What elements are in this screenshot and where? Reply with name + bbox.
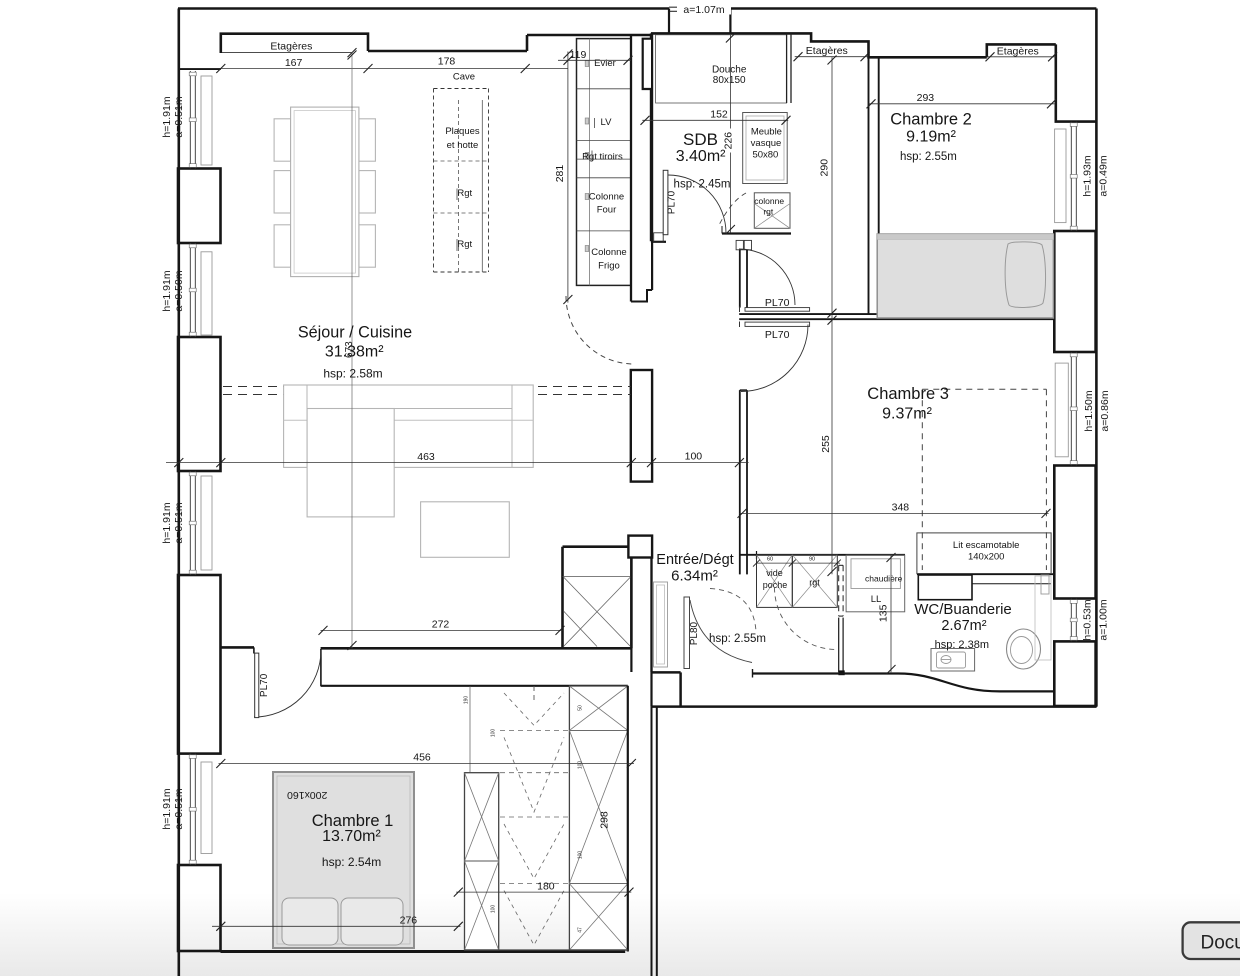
svg-text:135: 135 [877, 604, 889, 622]
svg-text:276: 276 [400, 915, 418, 927]
svg-text:Evier: Evier [594, 58, 616, 69]
svg-text:a=1.07m: a=1.07m [683, 4, 724, 16]
svg-text:Etagères: Etagères [270, 41, 312, 53]
svg-text:Four: Four [597, 204, 617, 215]
svg-text:80x150: 80x150 [713, 75, 746, 86]
svg-text:a=0.51m: a=0.51m [173, 788, 185, 829]
svg-text:h=1.91m: h=1.91m [161, 788, 173, 829]
svg-text:h=1.91m: h=1.91m [161, 96, 173, 137]
svg-text:chaudière: chaudière [865, 574, 903, 584]
svg-text:167: 167 [285, 57, 303, 69]
svg-text:h=1.93m: h=1.93m [1082, 155, 1094, 196]
svg-text:Colonne: Colonne [591, 247, 626, 258]
svg-text:h=1.91m: h=1.91m [161, 270, 173, 311]
svg-text:h=1.50m: h=1.50m [1083, 390, 1095, 431]
svg-text:Lit escamotable: Lit escamotable [953, 540, 1020, 551]
svg-text:PL70: PL70 [765, 297, 790, 309]
svg-text:281: 281 [554, 165, 566, 183]
svg-text:hsp: 2.38m: hsp: 2.38m [935, 639, 989, 651]
svg-text:LL: LL [871, 594, 882, 605]
svg-text:a=0.50m: a=0.50m [173, 270, 185, 311]
svg-text:226: 226 [723, 132, 735, 150]
svg-text:190: 190 [464, 696, 470, 705]
svg-text:rgt: rgt [763, 207, 774, 217]
svg-text:SDB: SDB [683, 130, 718, 149]
svg-text:100: 100 [685, 451, 703, 463]
svg-text:rgt: rgt [809, 578, 820, 588]
svg-text:Docu: Docu [1201, 933, 1240, 954]
svg-text:180: 180 [537, 880, 555, 892]
svg-text:272: 272 [432, 619, 450, 631]
svg-text:PL70: PL70 [259, 673, 270, 697]
svg-text:Séjour / Cuisine: Séjour / Cuisine [298, 324, 412, 342]
svg-text:Plaques: Plaques [445, 126, 480, 137]
svg-text:Douche: Douche [712, 64, 747, 75]
svg-text:vide: vide [766, 568, 783, 578]
svg-text:Chambre 1: Chambre 1 [312, 812, 394, 830]
svg-text:hsp: 2.55m: hsp: 2.55m [900, 151, 957, 163]
svg-text:hsp: 2.58m: hsp: 2.58m [323, 367, 382, 381]
svg-text:Entrée/Dégt: Entrée/Dégt [656, 552, 733, 568]
svg-text:90: 90 [809, 557, 815, 563]
svg-text:LV: LV [601, 117, 613, 128]
svg-text:h=1.91m: h=1.91m [161, 502, 173, 543]
svg-text:200x160: 200x160 [287, 789, 327, 801]
svg-text:3.40m²: 3.40m² [676, 148, 726, 165]
svg-text:255: 255 [820, 435, 832, 453]
svg-text:Rgt: Rgt [457, 239, 472, 250]
svg-text:Etagères: Etagères [997, 45, 1039, 57]
svg-text:463: 463 [417, 451, 435, 463]
svg-text:348: 348 [892, 502, 910, 514]
svg-text:a=0.86m: a=0.86m [1099, 390, 1111, 431]
svg-text:Cave: Cave [453, 72, 475, 83]
svg-text:100: 100 [578, 761, 584, 770]
svg-text:60: 60 [767, 557, 773, 563]
svg-text:47: 47 [578, 927, 584, 933]
svg-text:hsp: 2.45m: hsp: 2.45m [674, 179, 731, 191]
svg-text:100: 100 [491, 729, 497, 738]
svg-text:9.19m²: 9.19m² [906, 129, 956, 146]
svg-text:2.67m²: 2.67m² [941, 618, 986, 634]
svg-text:Colonne: Colonne [589, 192, 624, 203]
svg-text:Etagères: Etagères [806, 45, 848, 57]
svg-text:456: 456 [413, 752, 431, 764]
svg-text:PL70: PL70 [667, 190, 678, 214]
svg-text:293: 293 [917, 92, 935, 104]
svg-text:Chambre 3: Chambre 3 [867, 385, 949, 403]
svg-text:a=0.51m: a=0.51m [173, 502, 185, 543]
svg-text:Chambre 2: Chambre 2 [890, 111, 972, 129]
svg-text:PL70: PL70 [765, 329, 790, 341]
svg-text:Frigo: Frigo [598, 261, 620, 272]
svg-text:Meuble: Meuble [751, 127, 782, 138]
svg-text:140x200: 140x200 [968, 552, 1004, 563]
svg-text:hsp: 2.54m: hsp: 2.54m [322, 855, 381, 869]
svg-text:WC/Buanderie: WC/Buanderie [914, 601, 1012, 618]
svg-text:119: 119 [570, 49, 587, 61]
svg-text:9.37m²: 9.37m² [882, 406, 932, 423]
svg-text:hsp: 2.55m: hsp: 2.55m [709, 633, 766, 645]
svg-text:et hotte: et hotte [447, 140, 479, 151]
svg-text:100: 100 [578, 851, 584, 860]
svg-text:a=1.00m: a=1.00m [1098, 599, 1110, 640]
svg-text:298: 298 [599, 811, 611, 829]
svg-text:13.70m²: 13.70m² [322, 828, 381, 845]
svg-text:poche: poche [763, 580, 788, 590]
svg-text:h=0.53m: h=0.53m [1082, 599, 1094, 640]
svg-text:152: 152 [710, 108, 728, 120]
svg-text:673: 673 [344, 341, 355, 358]
svg-text:colonne: colonne [754, 196, 784, 206]
svg-text:Rgt: Rgt [457, 188, 472, 199]
svg-text:100: 100 [491, 905, 497, 914]
svg-text:290: 290 [818, 159, 830, 177]
svg-text:vasque: vasque [751, 138, 782, 149]
svg-text:178: 178 [438, 56, 456, 68]
svg-text:50: 50 [578, 705, 584, 711]
svg-text:6.34m²: 6.34m² [671, 568, 718, 585]
svg-text:Rgt tiroirs: Rgt tiroirs [582, 152, 623, 163]
svg-text:a=0.51m: a=0.51m [173, 96, 185, 137]
svg-text:a=0.49m: a=0.49m [1098, 155, 1110, 196]
svg-text:50x80: 50x80 [752, 149, 778, 160]
